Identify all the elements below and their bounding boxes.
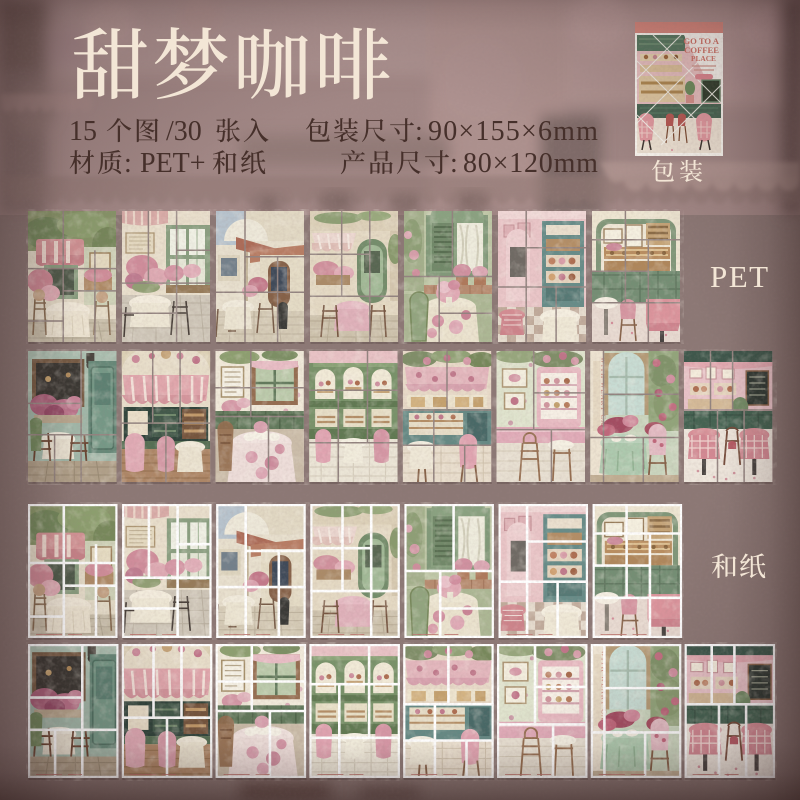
svg-text:PET+: PET+: [140, 148, 206, 179]
svg-text:PET: PET: [710, 259, 770, 294]
svg-text::: :: [450, 148, 458, 179]
svg-text::: :: [124, 148, 132, 179]
svg-text::: :: [415, 116, 423, 147]
svg-text:80×120mm: 80×120mm: [463, 148, 599, 179]
svg-text:/30: /30: [166, 116, 202, 147]
svg-text:90×155×6mm: 90×155×6mm: [428, 116, 599, 147]
svg-text:15: 15: [69, 116, 97, 147]
